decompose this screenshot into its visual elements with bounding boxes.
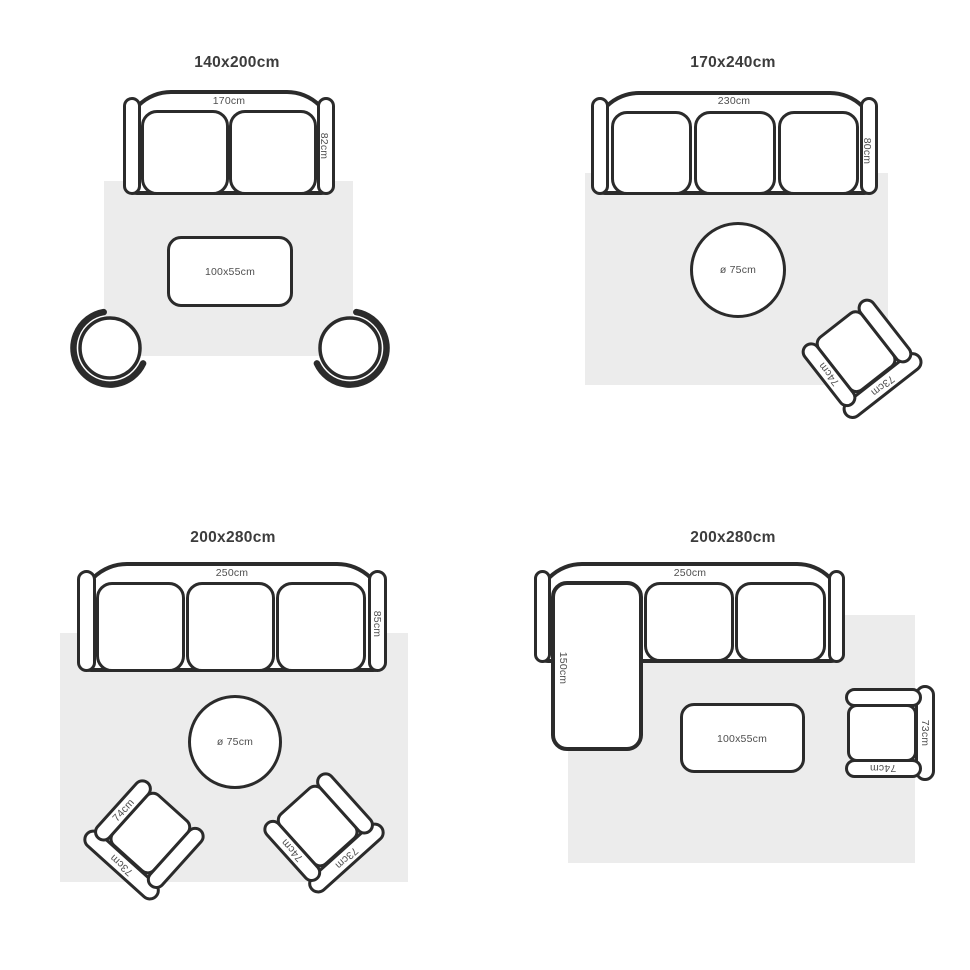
sofa-width-label: 250cm <box>674 567 707 579</box>
armchair-seat <box>847 704 917 762</box>
armchair: 74cm 73cm <box>845 688 935 778</box>
armchair-arm-label: 74cm <box>870 762 896 774</box>
sofa-chaise-label: 150cm <box>557 652 569 685</box>
sofa-cushion <box>735 582 826 662</box>
layout-title: 200x280cm <box>690 529 775 547</box>
sofa-cushion <box>644 582 734 662</box>
armchair-arm-right <box>845 688 922 707</box>
sofa-arm-right <box>828 570 845 663</box>
coffee-table-label: 100x55cm <box>717 733 767 745</box>
sofa-arm-left <box>534 570 551 663</box>
layout-200x280-corner-sofa: 200x280cm 250cm 150cm 100x55cm 74cm 73cm <box>0 0 970 970</box>
rug-size-guide: 140x200cm 170cm 82cm 100x55cm 170x240cm … <box>0 0 970 970</box>
armchair-back-label: 73cm <box>919 720 931 746</box>
